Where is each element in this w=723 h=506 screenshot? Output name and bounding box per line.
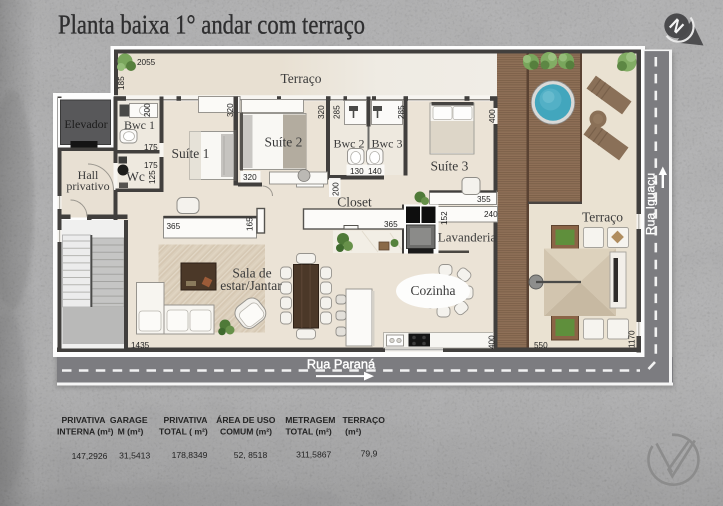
svg-text:ÁREA DE USO: ÁREA DE USO <box>216 415 276 425</box>
svg-text:285: 285 <box>397 105 406 119</box>
svg-text:Suíte 1: Suíte 1 <box>172 146 210 161</box>
svg-text:320: 320 <box>317 105 326 119</box>
svg-text:2055: 2055 <box>137 58 156 67</box>
svg-text:Bwc 1: Bwc 1 <box>124 118 155 132</box>
svg-text:Terraço: Terraço <box>280 71 321 86</box>
svg-text:285: 285 <box>333 105 342 119</box>
svg-text:Suíte 3: Suíte 3 <box>431 159 469 174</box>
svg-text:1170: 1170 <box>628 330 637 348</box>
svg-text:COMUM (m²): COMUM (m²) <box>220 427 272 437</box>
svg-text:400: 400 <box>488 335 497 349</box>
svg-text:175: 175 <box>144 143 158 152</box>
svg-text:Cozinha: Cozinha <box>411 283 456 298</box>
svg-text:Bwc 3: Bwc 3 <box>372 137 403 151</box>
svg-text:185: 185 <box>117 76 126 90</box>
svg-text:TOTAL (m²): TOTAL (m²) <box>285 427 331 437</box>
svg-text:79,9: 79,9 <box>361 449 378 459</box>
svg-text:130: 130 <box>350 167 364 176</box>
svg-text:365: 365 <box>167 222 181 231</box>
svg-text:Rua Paraná: Rua Paraná <box>307 356 376 371</box>
svg-text:TERRAÇO: TERRAÇO <box>342 415 385 425</box>
svg-text:320: 320 <box>243 173 257 182</box>
svg-text:INTERNA (m²): INTERNA (m²) <box>57 427 114 437</box>
svg-text:125: 125 <box>148 170 157 184</box>
svg-text:355: 355 <box>477 195 491 204</box>
svg-text:52, 8518: 52, 8518 <box>234 450 268 460</box>
svg-text:Planta baixa 1° andar com terr: Planta baixa 1° andar com terraço <box>58 9 365 39</box>
svg-text:140: 140 <box>368 167 382 176</box>
svg-text:GARAGE: GARAGE <box>110 415 148 425</box>
svg-text:175: 175 <box>144 161 158 170</box>
svg-text:240: 240 <box>484 210 498 219</box>
svg-text:Terraço: Terraço <box>582 210 623 225</box>
svg-text:320: 320 <box>226 103 235 117</box>
svg-text:152: 152 <box>440 211 449 225</box>
svg-text:PRIVATIVA: PRIVATIVA <box>62 415 106 425</box>
svg-text:178,8349: 178,8349 <box>172 450 208 460</box>
svg-text:311,5867: 311,5867 <box>296 450 331 460</box>
svg-text:365: 365 <box>384 220 398 229</box>
svg-text:Rua Iguaçu: Rua Iguaçu <box>644 173 658 235</box>
svg-text:Closet: Closet <box>337 195 372 210</box>
svg-text:M (m²): M (m²) <box>118 427 144 437</box>
svg-text:privativo: privativo <box>66 179 109 193</box>
svg-text:(m²): (m²) <box>345 427 361 437</box>
svg-text:1435: 1435 <box>131 341 150 350</box>
svg-text:400: 400 <box>488 109 497 123</box>
svg-text:165: 165 <box>246 217 255 231</box>
svg-text:200: 200 <box>143 103 152 117</box>
svg-text:Suíte 2: Suíte 2 <box>265 135 303 150</box>
svg-text:Wc: Wc <box>126 169 145 184</box>
svg-text:Lavanderia: Lavanderia <box>438 230 497 245</box>
svg-text:Elevador: Elevador <box>64 117 107 131</box>
svg-text:PRIVATIVA: PRIVATIVA <box>164 415 208 425</box>
svg-text:147,2926: 147,2926 <box>72 451 108 461</box>
svg-text:METRAGEM: METRAGEM <box>285 415 335 425</box>
svg-text:31,5413: 31,5413 <box>119 451 150 461</box>
svg-text:Bwc 2: Bwc 2 <box>334 137 365 151</box>
svg-text:550: 550 <box>534 341 548 350</box>
svg-text:estar/Jantar: estar/Jantar <box>220 278 282 293</box>
svg-text:TOTAL ( m²): TOTAL ( m²) <box>159 427 208 437</box>
